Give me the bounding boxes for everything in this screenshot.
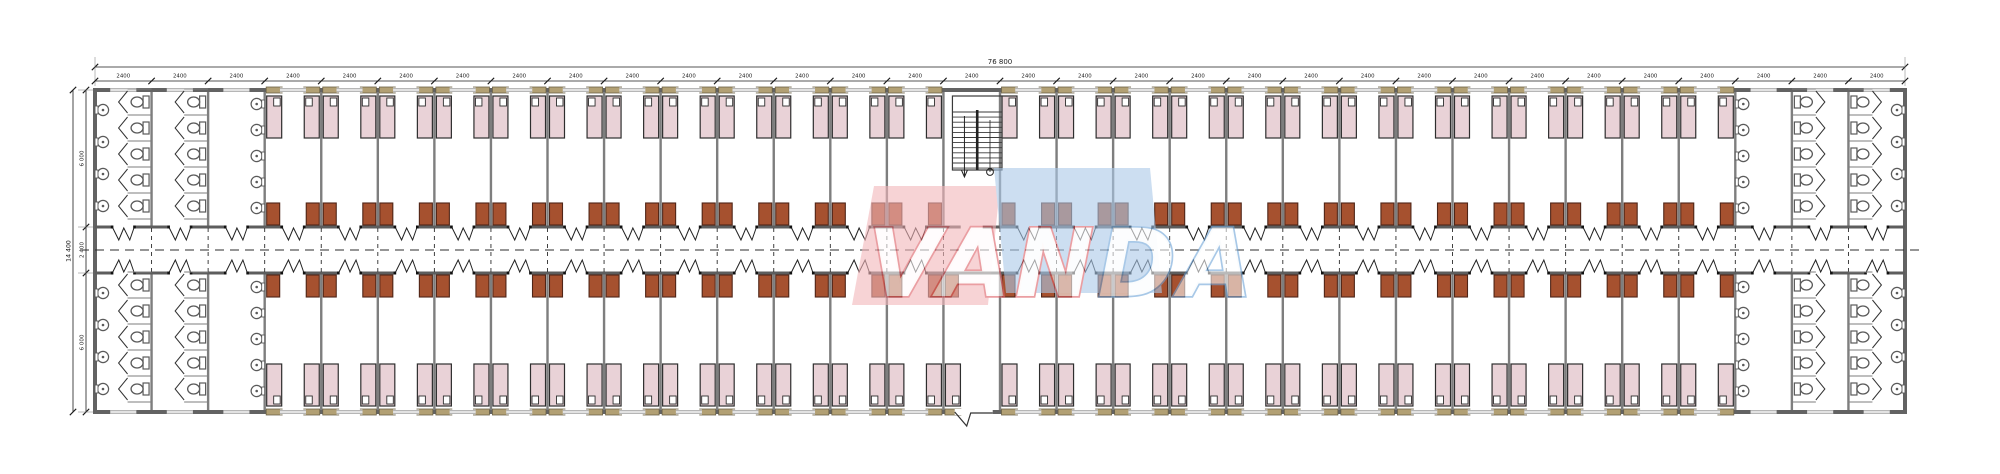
svg-text:2400: 2400 (625, 74, 639, 80)
svg-text:2400: 2400 (343, 74, 357, 80)
room-bottom (1680, 275, 1734, 415)
room-bottom (549, 275, 603, 415)
room-top (1680, 87, 1734, 225)
room-bottom (1397, 275, 1451, 415)
svg-text:2400: 2400 (682, 74, 696, 80)
room-top (1454, 87, 1508, 225)
room-bottom (1454, 275, 1508, 415)
svg-text:2400: 2400 (1757, 74, 1771, 80)
svg-text:2400: 2400 (1870, 74, 1884, 80)
svg-text:2400: 2400 (1813, 74, 1827, 80)
staircase (952, 96, 1002, 177)
svg-text:2400: 2400 (286, 74, 300, 80)
room-bottom (1624, 275, 1678, 415)
room-bottom (1284, 275, 1338, 415)
svg-text:2400: 2400 (1135, 74, 1149, 80)
room-top (1284, 87, 1338, 225)
svg-text:2400: 2400 (739, 74, 753, 80)
svg-text:6 000: 6 000 (80, 334, 86, 350)
room-top (492, 87, 546, 225)
svg-text:2400: 2400 (456, 74, 470, 80)
room-bottom (1567, 275, 1621, 415)
room-top (436, 87, 490, 225)
room-top (606, 87, 660, 225)
svg-text:2400: 2400 (116, 74, 130, 80)
svg-text:2400: 2400 (908, 74, 922, 80)
entrance-opening (955, 409, 993, 426)
room-top (1341, 87, 1395, 225)
sanitary-block (1735, 89, 1905, 219)
svg-text:2400: 2400 (399, 74, 413, 80)
svg-text:2400: 2400 (1361, 74, 1375, 80)
svg-text:2400: 2400 (1021, 74, 1035, 80)
room-top (1171, 87, 1225, 225)
svg-text:2400: 2400 (1304, 74, 1318, 80)
svg-text:2400: 2400 (173, 74, 187, 80)
room-bottom (719, 275, 773, 415)
room-bottom (266, 275, 320, 415)
sanitary-block (95, 272, 265, 402)
room-top (1624, 87, 1678, 225)
room-top (719, 87, 773, 225)
svg-text:2400: 2400 (1587, 74, 1601, 80)
room-top (1228, 87, 1282, 225)
svg-text:2400: 2400 (1530, 74, 1544, 80)
room-top (1511, 87, 1565, 225)
sanitary-block (1735, 272, 1905, 402)
svg-text:2400: 2400 (965, 74, 979, 80)
room-top (662, 87, 716, 225)
svg-text:6 000: 6 000 (80, 150, 86, 166)
room-top (1567, 87, 1621, 225)
watermark: VANDA (852, 168, 1257, 319)
svg-text:2400: 2400 (1644, 74, 1658, 80)
dimension-left: 14 4006 0002 4006 000 (66, 87, 96, 415)
room-bottom (379, 275, 433, 415)
floor-plan-drawing: 76 8002400240024002400240024002400240024… (0, 0, 2000, 474)
room-bottom (775, 275, 829, 415)
room-bottom (1511, 275, 1565, 415)
room-bottom (662, 275, 716, 415)
svg-text:2400: 2400 (1078, 74, 1092, 80)
room-top (775, 87, 829, 225)
svg-text:2400: 2400 (1248, 74, 1262, 80)
svg-text:2400: 2400 (852, 74, 866, 80)
dim-total-height: 14 400 (66, 240, 73, 262)
svg-text:2400: 2400 (1417, 74, 1431, 80)
room-bottom (323, 275, 377, 415)
svg-text:2400: 2400 (569, 74, 583, 80)
room-top (379, 87, 433, 225)
room-bottom (1341, 275, 1395, 415)
watermark-text: VANDA (868, 210, 1257, 319)
dimension-top: 76 8002400240024002400240024002400240024… (92, 57, 1908, 86)
room-top (266, 87, 320, 225)
svg-text:2400: 2400 (512, 74, 526, 80)
dim-total-width: 76 800 (988, 58, 1013, 66)
room-top (323, 87, 377, 225)
room-top (1397, 87, 1451, 225)
sanitary-block (95, 89, 265, 219)
svg-text:2400: 2400 (1700, 74, 1714, 80)
room-bottom (436, 275, 490, 415)
svg-text:2400: 2400 (1191, 74, 1205, 80)
svg-text:2400: 2400 (795, 74, 809, 80)
room-bottom (606, 275, 660, 415)
room-bottom (492, 275, 546, 415)
svg-text:2400: 2400 (1474, 74, 1488, 80)
room-top (549, 87, 603, 225)
svg-text:2400: 2400 (230, 74, 244, 80)
floor-plan-svg: 76 8002400240024002400240024002400240024… (0, 0, 2000, 474)
